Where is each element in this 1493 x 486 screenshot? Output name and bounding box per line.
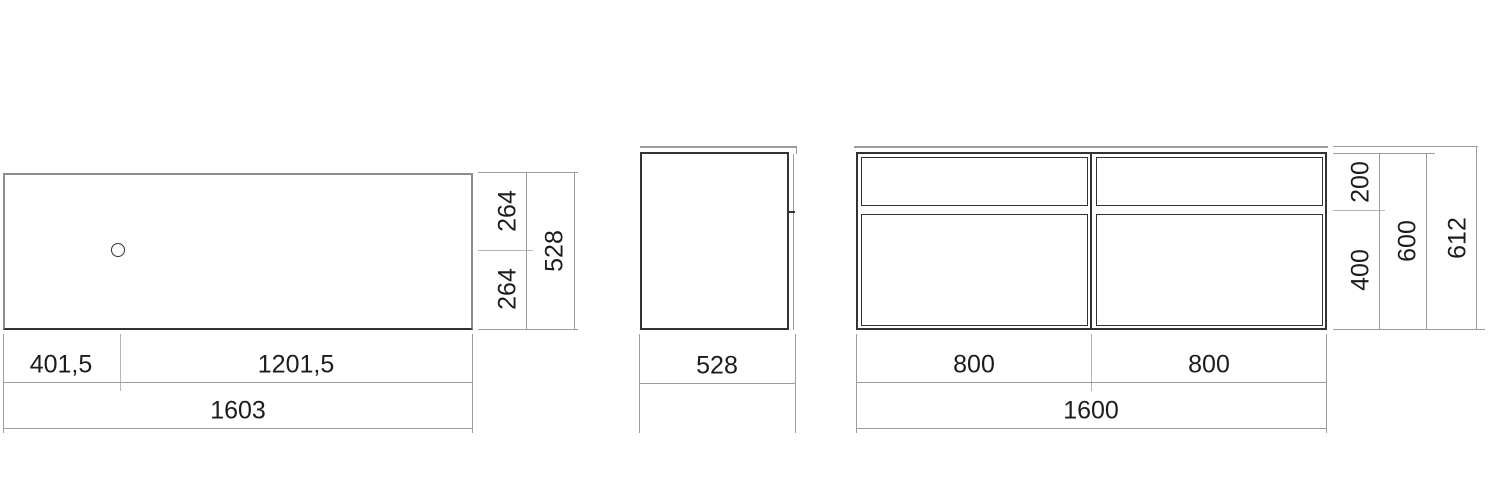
dim-label-top-depth-total: 528 [543, 230, 568, 272]
extension-line [856, 334, 857, 433]
dim-label-top-depth-upper: 264 [496, 190, 521, 232]
drawer-front-top-right [1096, 157, 1323, 206]
side-view-countertop-edge-right [796, 146, 797, 154]
drawer-front-bottom-left [861, 214, 1088, 326]
dimension-line [639, 383, 796, 384]
side-view-drawer-front-edge [793, 154, 794, 330]
dim-label-front-width-left: 800 [953, 353, 995, 378]
dimension-line [1426, 153, 1427, 330]
dimension-line [856, 428, 1327, 429]
dim-label-top-width-total: 1603 [210, 399, 266, 424]
extension-line [478, 329, 578, 330]
side-view-countertop-edge [640, 146, 797, 148]
dim-label-top-width-left: 401,5 [30, 353, 93, 378]
dimension-line [574, 173, 575, 330]
dim-label-front-overall-height: 612 [1446, 217, 1471, 259]
dimension-line [856, 382, 1327, 383]
dim-label-top-depth-lower: 264 [496, 268, 521, 310]
extension-line [478, 250, 533, 251]
dim-label-side-depth-total: 528 [696, 354, 738, 379]
front-view-countertop-edge [854, 146, 1328, 148]
dimension-line [3, 428, 473, 429]
technical-drawing-canvas: 264 264 528 401,5 1201,5 1603 528 200 40… [0, 0, 1493, 486]
extension-line [478, 172, 578, 173]
dimension-line [526, 173, 527, 330]
dimension-line [3, 382, 473, 383]
faucet-hole [111, 243, 125, 257]
extension-line [1333, 146, 1478, 147]
side-view-drawer-divider [789, 211, 795, 213]
dimension-line [1379, 153, 1380, 330]
extension-line [1326, 334, 1327, 433]
drawer-front-top-left [861, 157, 1088, 206]
extension-line [3, 334, 4, 433]
extension-line [1333, 153, 1435, 154]
front-view-center-divider [1090, 152, 1092, 330]
side-view-outline [640, 152, 789, 330]
dim-label-top-width-right: 1201,5 [258, 353, 334, 378]
dim-label-front-cabinet-height: 600 [1396, 220, 1421, 262]
dim-label-front-top-drawer-height: 200 [1349, 161, 1374, 203]
extension-line [472, 334, 473, 433]
dimension-line [1476, 146, 1477, 330]
extension-line [1333, 210, 1385, 211]
dim-label-front-width-total: 1600 [1063, 399, 1119, 424]
top-view-outline [3, 173, 473, 330]
drawer-front-bottom-right [1096, 214, 1323, 326]
dim-label-front-width-right: 800 [1188, 353, 1230, 378]
dim-label-front-bottom-drawer-height: 400 [1349, 249, 1374, 291]
extension-line [1333, 329, 1485, 330]
